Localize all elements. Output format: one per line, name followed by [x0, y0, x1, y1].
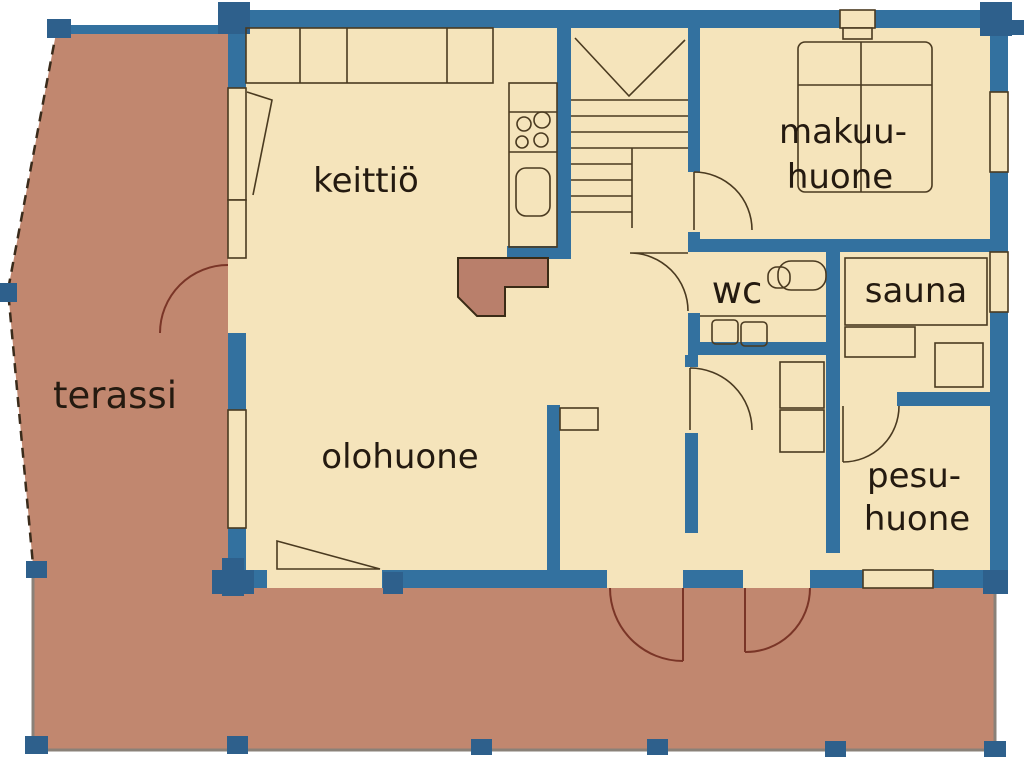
label-olohuone: olohuone — [321, 437, 478, 477]
post — [227, 736, 248, 754]
post — [647, 739, 668, 755]
floor-plan: terassi keittiö olohuone makuu- huone wc… — [0, 0, 1024, 768]
post — [984, 741, 1006, 757]
door-gap-backhall — [685, 367, 698, 433]
label-sauna: sauna — [865, 271, 967, 311]
door-gap-wc — [688, 252, 700, 313]
door-gap-left-terrace — [228, 258, 246, 333]
post — [983, 570, 1008, 594]
post — [825, 741, 846, 757]
wall-kitchen-stairs — [557, 28, 571, 258]
window-kitchen-left2 — [228, 200, 246, 258]
terrace-beam — [57, 25, 230, 34]
label-makuuhuone-line2: huone — [787, 157, 893, 197]
door-gap-pesuhuone-terrace — [743, 570, 810, 588]
door-gap-hall-terrace — [607, 570, 683, 588]
door-gap-pesuhuone — [826, 553, 840, 570]
post — [26, 561, 47, 578]
window-olohuone-left — [228, 410, 246, 528]
label-pesuhuone-line1: pesu- — [867, 456, 961, 496]
door-gap-sauna — [840, 392, 897, 406]
window-bedroom-top-sill — [843, 28, 872, 39]
label-terassi: terassi — [53, 374, 177, 417]
wall-bedroom-bottom — [688, 239, 1008, 252]
post — [25, 736, 48, 754]
wall-backhall — [685, 433, 698, 533]
post — [1008, 20, 1024, 35]
post — [47, 19, 71, 38]
label-makuuhuone-line1: makuu- — [779, 112, 907, 152]
label-wc: wc — [712, 269, 763, 312]
post — [383, 572, 403, 594]
wall-stairs-bedroom — [688, 28, 700, 172]
label-keittio: keittiö — [313, 161, 419, 201]
door-gap-olohuone-terrace — [267, 570, 382, 588]
wall-hall-olohuone — [547, 405, 560, 570]
wall-backhall-top — [685, 355, 698, 367]
window-pesuhuone-bottom — [863, 570, 933, 588]
post — [0, 283, 17, 302]
label-pesuhuone-line2: huone — [864, 499, 970, 539]
window-bedroom-top — [840, 10, 875, 28]
window-bedroom-right — [990, 92, 1008, 172]
window-kitchen-left — [228, 88, 246, 200]
window-sauna-right — [990, 252, 1008, 312]
post — [471, 739, 492, 755]
post — [980, 2, 1012, 36]
floor-plan-canvas: terassi keittiö olohuone makuu- huone wc… — [0, 0, 1024, 768]
wall-wc-bottom — [688, 342, 834, 355]
post — [222, 558, 244, 596]
